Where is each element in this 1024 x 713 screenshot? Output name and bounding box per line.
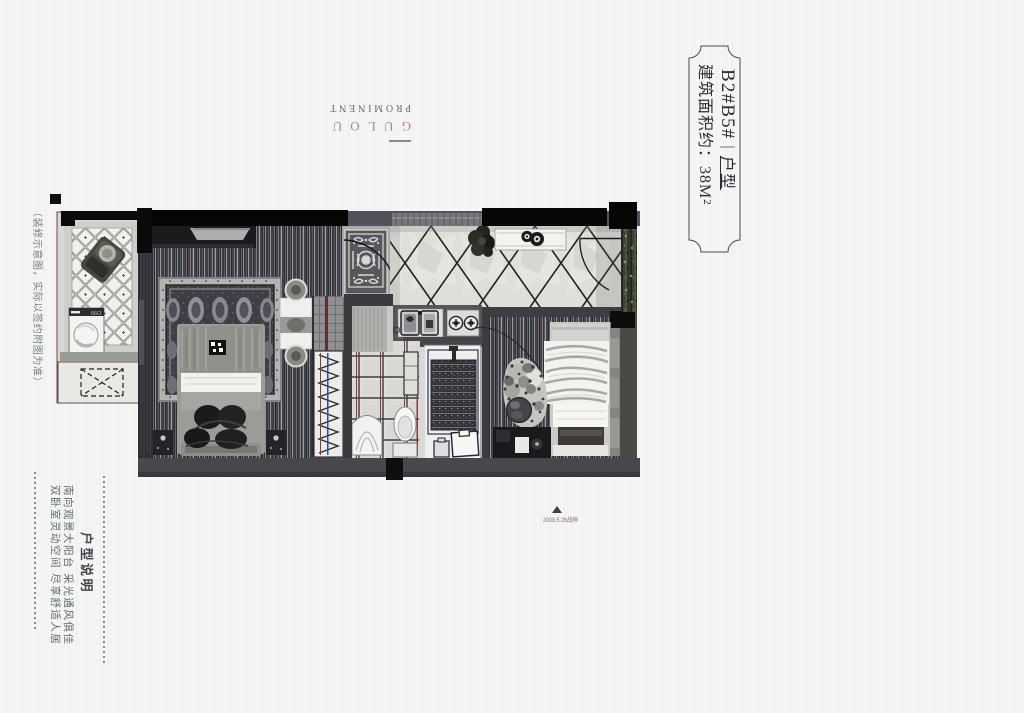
svg-text:66O: 66O: [91, 311, 102, 317]
